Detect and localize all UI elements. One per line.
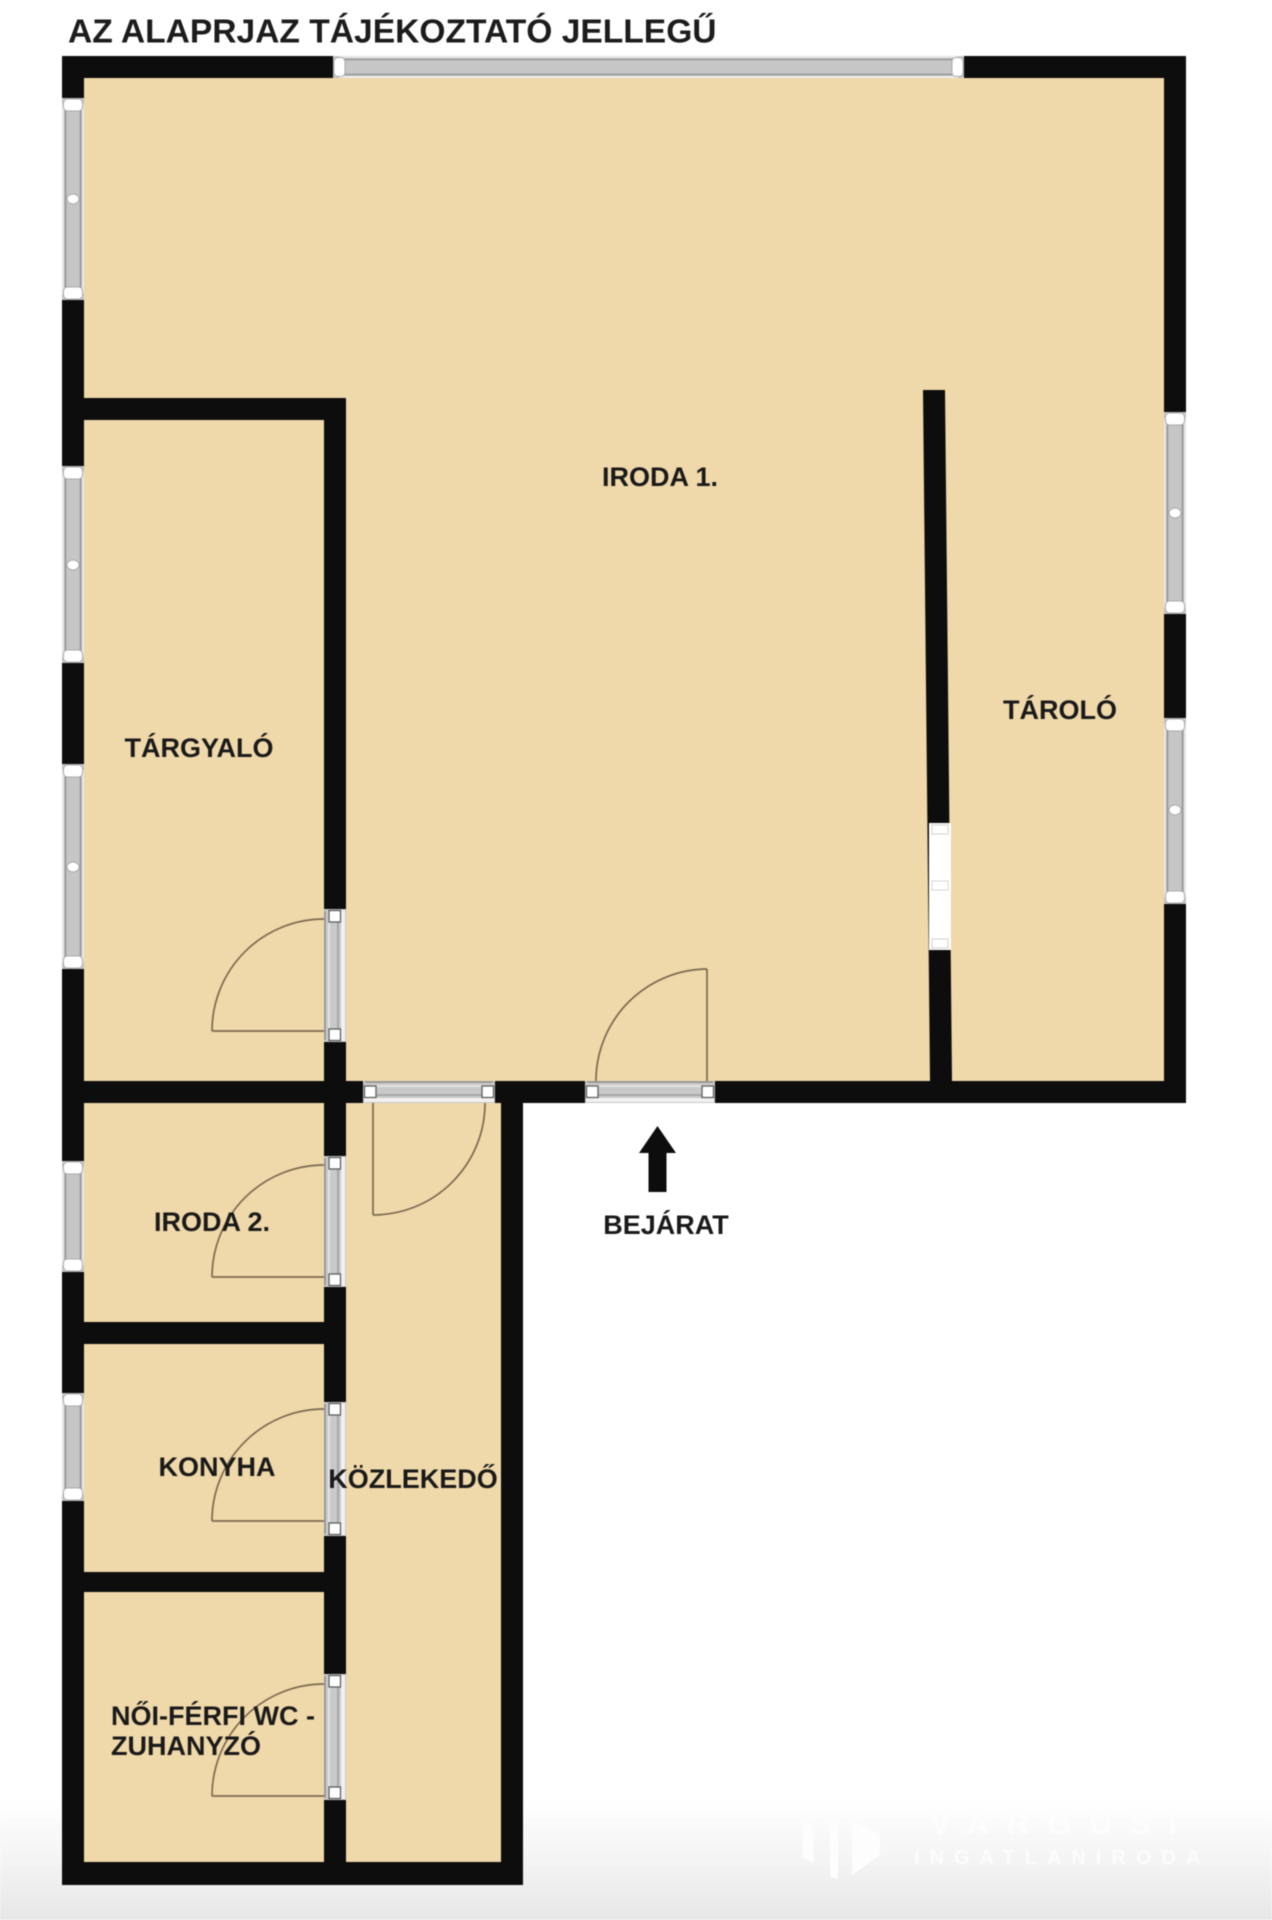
svg-text:VARGUSI: VARGUSI: [930, 1806, 1195, 1841]
svg-text:IRODA 2.: IRODA 2.: [154, 1207, 270, 1237]
svg-text:AZ ALAPRJAZ TÁJÉKOZTATÓ JELLEG: AZ ALAPRJAZ TÁJÉKOZTATÓ JELLEGŰ: [68, 13, 717, 51]
svg-text:KÖZLEKEDŐ: KÖZLEKEDŐ: [328, 1463, 498, 1494]
svg-text:INGATLANIRODA: INGATLANIRODA: [914, 1847, 1210, 1869]
svg-text:TÁROLÓ: TÁROLÓ: [1003, 694, 1117, 725]
svg-text:IRODA 1.: IRODA 1.: [602, 462, 718, 492]
svg-text:KONYHA: KONYHA: [158, 1452, 275, 1482]
svg-text:ZUHANYZÓ: ZUHANYZÓ: [111, 1730, 261, 1761]
svg-text:TÁRGYALÓ: TÁRGYALÓ: [124, 732, 273, 763]
svg-text:NŐI-FÉRFI WC -: NŐI-FÉRFI WC -: [111, 1700, 315, 1731]
svg-text:BEJÁRAT: BEJÁRAT: [603, 1209, 729, 1240]
